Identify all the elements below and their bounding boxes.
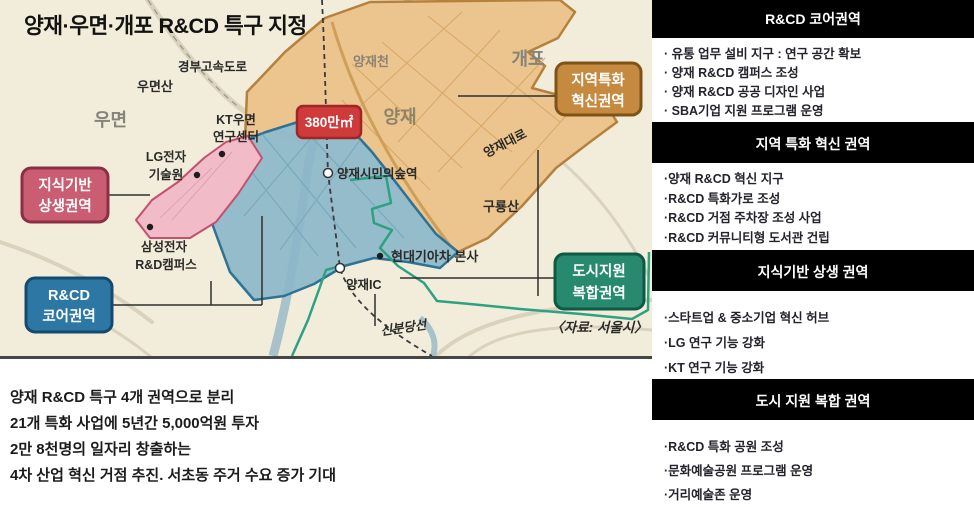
label-umyeonsan: 우면산 bbox=[137, 79, 173, 94]
summary-line: 양재 R&CD 특구 4개 권역으로 분리 bbox=[10, 385, 652, 411]
callout-urban-line1: 도시지원 bbox=[572, 263, 625, 280]
program-item: ·양재 R&CD 혁신 지구 bbox=[664, 170, 962, 190]
map-title: 양재·우면·개포 R&CD 특구 지정 bbox=[24, 14, 307, 38]
station-marker-forest bbox=[324, 169, 333, 178]
program-item: · SBA기업 지원 프로그램 운영 bbox=[664, 102, 962, 121]
callout-regional-line1: 지역특화 bbox=[571, 72, 625, 89]
label-yangjaecheon: 양재천 bbox=[353, 54, 389, 69]
section-item-list: ·양재 R&CD 혁신 지구 ·R&CD 특화가로 조성 ·R&CD 거점 주차… bbox=[652, 163, 974, 250]
program-item: · 유통 업무 설비 지구 : 연구 공간 확보 bbox=[664, 45, 962, 64]
summary-line: 2만 8천명의 일자리 창출하는 bbox=[10, 437, 652, 463]
summary-line: 21개 특화 사업에 5년간 5,000억원 투자 bbox=[10, 411, 652, 437]
label-lg-line2: 기술원 bbox=[149, 167, 184, 182]
callout-regional: 지역특화 혁신권역 bbox=[556, 63, 641, 115]
sidebar-section-knowledge: 지식기반 상생 권역 ·스타트업 & 중소기업 혁신 허브 ·LG 연구 기능 … bbox=[652, 253, 974, 379]
hyundai-poi-dot bbox=[377, 253, 383, 259]
kt-poi-dot bbox=[219, 151, 225, 157]
program-item: ·LG 연구 기능 강화 bbox=[664, 331, 962, 356]
sidebar-section-urban: 도시 지원 복합 권역 ·R&CD 특화 공원 조성 ·문화예술공원 프로그램 … bbox=[652, 382, 974, 507]
callout-urban: 도시지원 복합권역 bbox=[555, 254, 644, 309]
label-yangjae: 양재 bbox=[383, 107, 416, 127]
program-item: ·R&CD 특화 공원 조성 bbox=[664, 435, 962, 459]
section-item-list: ·스타트업 & 중소기업 혁신 허브 ·LG 연구 기능 강화 ·KT 연구 기… bbox=[652, 291, 974, 379]
program-item: · 양재 R&CD 공공 디자인 사업 bbox=[664, 83, 962, 102]
callout-core-line2: 코어권역 bbox=[42, 307, 95, 325]
map-panel: 양재·우면·개포 R&CD 특구 지정 경부고속도로 우면산 우면 KT우면 연… bbox=[0, 0, 652, 489]
area-badge: 380만㎡ bbox=[297, 106, 361, 138]
callout-knowledge: 지식기반 상생권역 bbox=[22, 168, 108, 222]
map-canvas: 양재·우면·개포 R&CD 특구 지정 경부고속도로 우면산 우면 KT우면 연… bbox=[0, 0, 652, 356]
sidebar-section-regional: 지역 특화 혁신 권역 ·양재 R&CD 혁신 지구 ·R&CD 특화가로 조성… bbox=[652, 125, 974, 250]
section-item-list: ·R&CD 특화 공원 조성 ·문화예술공원 프로그램 운영 ·거리예술존 운영 bbox=[652, 420, 974, 507]
sidebar-section-core: R&CD 코어권역 · 유통 업무 설비 지구 : 연구 공간 확보 · 양재 … bbox=[652, 0, 974, 122]
program-item: ·문화예술공원 프로그램 운영 bbox=[664, 459, 962, 483]
section-header: R&CD 코어권역 bbox=[652, 0, 974, 38]
callout-regional-line2: 혁신권역 bbox=[571, 92, 624, 110]
label-kt-line2: 연구센터 bbox=[213, 129, 259, 144]
label-kt-line1: KT우면 bbox=[216, 112, 256, 127]
label-expressway: 경부고속도로 bbox=[178, 59, 248, 74]
map-source: 〈자료: 서울시〉 bbox=[550, 320, 647, 335]
callout-knowledge-line1: 지식기반 bbox=[38, 177, 92, 194]
label-yangjae-ic: 양재IC bbox=[346, 277, 382, 292]
summary-text: 양재 R&CD 특구 4개 권역으로 분리 21개 특화 사업에 5년간 5,0… bbox=[0, 359, 652, 489]
callout-core: R&CD 코어권역 bbox=[26, 278, 112, 332]
samsung-poi-dot bbox=[147, 224, 153, 230]
callout-urban-line2: 복합권역 bbox=[572, 284, 625, 302]
program-item: ·R&CD 거점 주차장 조성 사업 bbox=[664, 209, 962, 229]
lg-poi-dot bbox=[194, 172, 200, 178]
program-item: ·거리예술존 운영 bbox=[664, 483, 962, 507]
callout-knowledge-line2: 상생권역 bbox=[38, 197, 91, 215]
program-item: ·스타트업 & 중소기업 혁신 허브 bbox=[664, 306, 962, 331]
program-item: ·KT 연구 기능 강화 bbox=[664, 356, 962, 381]
label-hyundai-kia: 현대기아차 본사 bbox=[391, 249, 478, 264]
label-umyeon: 우면 bbox=[94, 110, 127, 130]
area-badge-text: 380만㎡ bbox=[305, 114, 354, 130]
summary-line: 4차 산업 혁신 거점 추진. 서초동 주거 수요 증가 기대 bbox=[10, 463, 652, 489]
label-forest-station: 양재시민의숲역 bbox=[337, 166, 418, 181]
section-header: 도시 지원 복합 권역 bbox=[652, 382, 974, 420]
section-header: 지역 특화 혁신 권역 bbox=[652, 125, 974, 163]
program-sidebar: R&CD 코어권역 · 유통 업무 설비 지구 : 연구 공간 확보 · 양재 … bbox=[652, 0, 974, 488]
label-guryongsan: 구룡산 bbox=[483, 199, 519, 214]
program-item: ·R&CD 커뮤니티형 도서관 건립 bbox=[664, 229, 962, 249]
section-item-list: · 유통 업무 설비 지구 : 연구 공간 확보 · 양재 R&CD 캠퍼스 조… bbox=[652, 38, 974, 122]
station-marker-ic bbox=[336, 264, 345, 273]
label-lg-line1: LG전자 bbox=[146, 149, 187, 164]
district-map: 양재·우면·개포 R&CD 특구 지정 경부고속도로 우면산 우면 KT우면 연… bbox=[0, 0, 652, 359]
program-item: · 양재 R&CD 캠퍼스 조성 bbox=[664, 64, 962, 83]
label-samsung-line1: 삼성전자 bbox=[141, 239, 188, 254]
section-header: 지식기반 상생 권역 bbox=[652, 253, 974, 291]
program-item: ·R&CD 특화가로 조성 bbox=[664, 190, 962, 210]
label-gaepo: 개포 bbox=[511, 49, 544, 69]
callout-core-line1: R&CD bbox=[48, 288, 90, 304]
label-samsung-line2: R&D캠퍼스 bbox=[135, 257, 197, 272]
